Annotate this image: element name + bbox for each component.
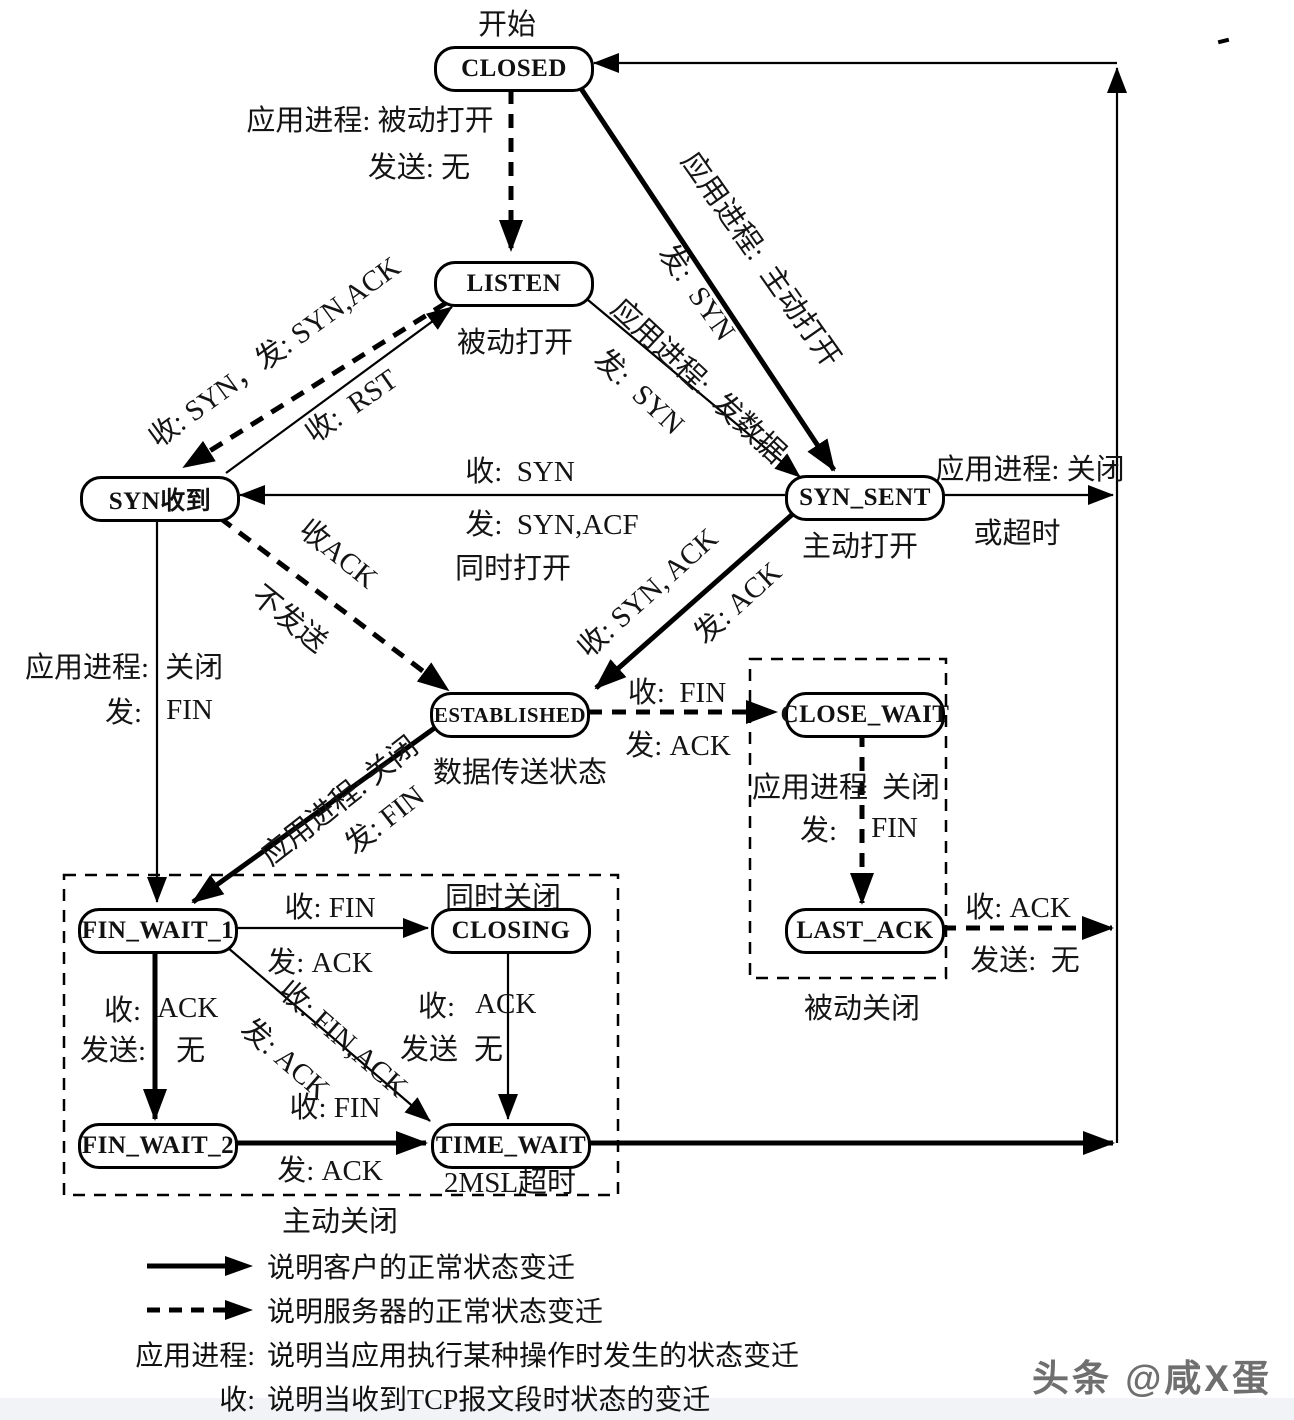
label-synrcvd-fw1-send: 发:FIN <box>105 689 213 731</box>
state-time-wait: TIME_WAIT <box>431 1123 591 1169</box>
legend-key: 收: <box>95 1378 255 1418</box>
label-passive-close: 被动关闭 <box>804 985 920 1027</box>
label-send-syn-acf: 发: SYN,ACF <box>465 501 638 543</box>
legend-row-server: 说明服务器的正常状态变迁 <box>95 1290 850 1330</box>
dashed-arrow-icon <box>145 1299 255 1321</box>
label-fw12-recv-ack: 收:ACK <box>104 987 218 1029</box>
label-synsent-close-2: 或超时 <box>973 510 1060 552</box>
legend-text: 说明当收到TCP报文段时状态的变迁 <box>267 1378 710 1418</box>
label-cltw-send-none: 发送无 <box>400 1026 503 1068</box>
state-closing: CLOSING <box>431 908 591 954</box>
label-send-none-top: 发送: 无 <box>368 144 470 186</box>
legend-row-app: 应用进程: 说明当应用执行某种操作时发生的状态变迁 <box>95 1334 850 1374</box>
label-active-open-note: 主动打开 <box>802 523 918 565</box>
state-closed: CLOSED <box>434 46 594 92</box>
legend-key: 应用进程: <box>95 1334 255 1374</box>
state-fin-wait-2: FIN_WAIT_2 <box>78 1123 238 1169</box>
legend-row-recv: 收: 说明当收到TCP报文段时状态的变迁 <box>95 1378 850 1418</box>
label-synsent-close-1: 应用进程: 关闭 <box>935 446 1124 488</box>
legend: 说明客户的正常状态变迁 说明服务器的正常状态变迁 应用进程: 说明当应用执行某种… <box>95 1246 850 1420</box>
label-recv-syn: 收: SYN <box>465 448 575 490</box>
label-la-send-none: 发送: 无 <box>970 937 1080 979</box>
label-synrcvd-fw1-app: 应用进程:关闭 <box>25 644 223 686</box>
label-start: 开始 <box>478 1 536 43</box>
label-app-passive-open: 应用进程: 被动打开 <box>246 97 493 139</box>
state-syn-rcvd: SYN收到 <box>80 476 240 522</box>
solid-arrow-icon <box>145 1255 255 1277</box>
label-active-close: 主动关闭 <box>282 1198 398 1240</box>
label-fw2tw-send-ack: 发: ACK <box>277 1147 383 1189</box>
label-fw1-closing-send: 发: ACK <box>267 939 373 981</box>
state-listen: LISTEN <box>434 261 594 307</box>
label-est-cw-recv-fin: 收: FIN <box>628 669 726 711</box>
state-fin-wait-1: FIN_WAIT_1 <box>78 908 238 954</box>
label-cltw-recv-ack: 收:ACK <box>418 983 536 1025</box>
tcp-state-diagram: CLOSED LISTEN SYN收到 SYN_SENT ESTABLISHED… <box>0 0 1294 1420</box>
label-cw-send-fin: 发:FIN <box>800 807 918 849</box>
state-last-ack: LAST_ACK <box>785 908 945 954</box>
label-passive-open-note: 被动打开 <box>457 319 573 361</box>
state-close-wait: CLOSE_WAIT <box>785 692 945 738</box>
label-cw-app-close: 应用进程关闭 <box>752 764 940 806</box>
legend-text: 说明服务器的正常状态变迁 <box>267 1290 603 1330</box>
label-fw12-send-none: 发送:无 <box>80 1027 205 1069</box>
legend-text: 说明客户的正常状态变迁 <box>267 1246 575 1286</box>
legend-text: 说明当应用执行某种操作时发生的状态变迁 <box>267 1334 799 1374</box>
watermark: 头条 @咸X蛋 <box>1032 1348 1272 1402</box>
legend-row-client: 说明客户的正常状态变迁 <box>95 1246 850 1286</box>
label-data-transfer: 数据传送状态 <box>433 749 607 791</box>
label-simul-open: 同时打开 <box>455 545 571 587</box>
state-established: ESTABLISHED <box>430 692 590 738</box>
label-est-cw-send-ack: 发: ACK <box>625 722 731 764</box>
label-la-recv-ack: 收: ACK <box>965 884 1071 926</box>
label-fw1-closing-recv: 收: FIN <box>284 884 375 926</box>
state-syn-sent: SYN_SENT <box>785 475 945 521</box>
